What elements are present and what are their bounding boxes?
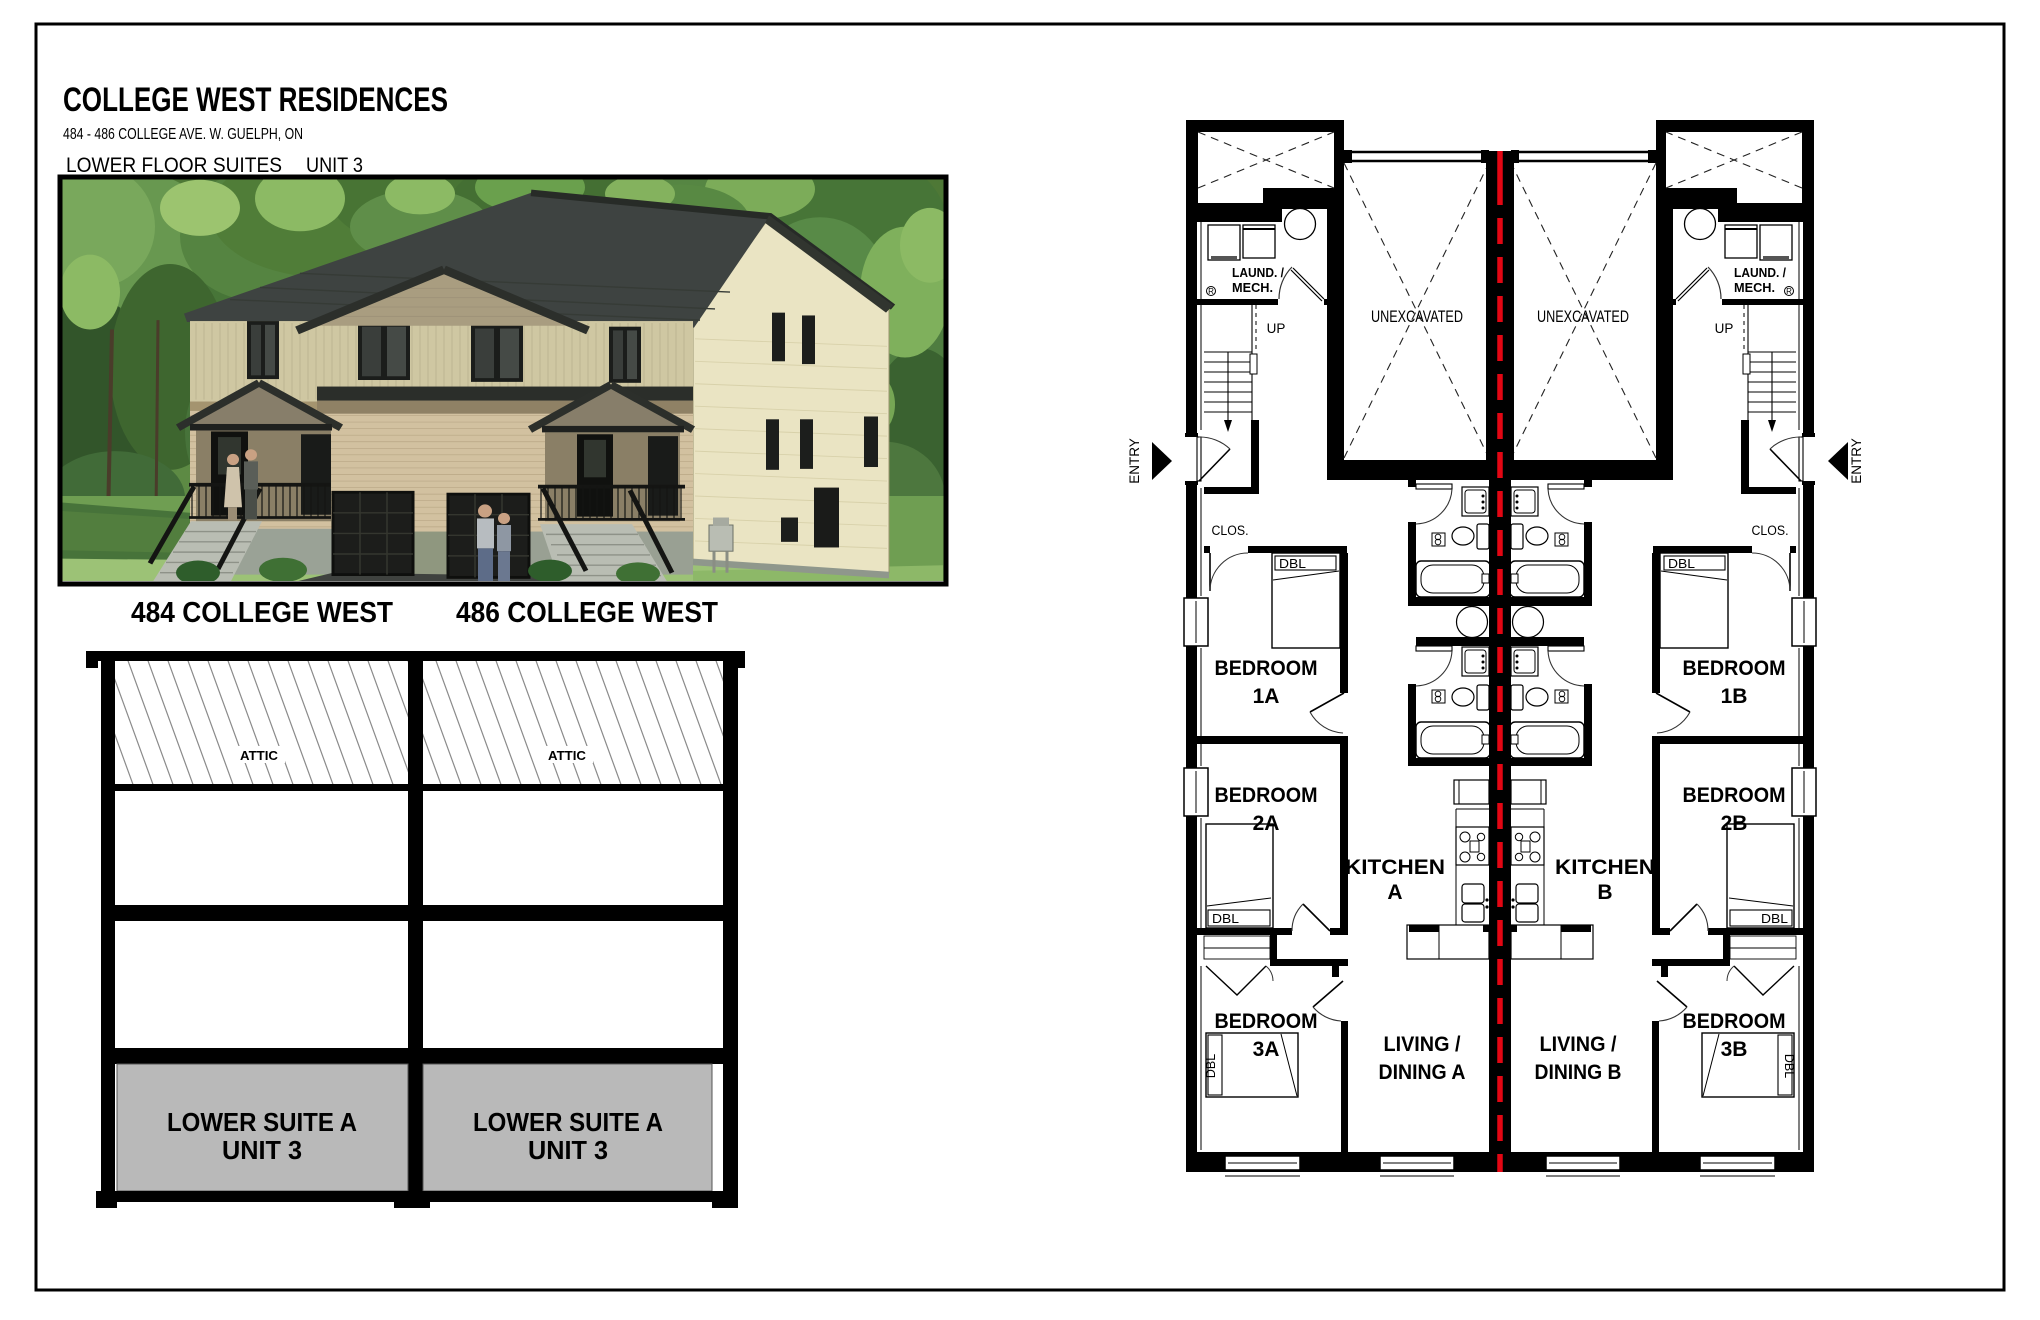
svg-text:DINING A: DINING A <box>1379 1061 1466 1084</box>
svg-text:1B: 1B <box>1721 685 1748 708</box>
svg-text:UNEXCAVATED: UNEXCAVATED <box>1371 307 1463 326</box>
svg-text:A: A <box>1387 881 1402 904</box>
svg-text:2B: 2B <box>1721 812 1748 835</box>
svg-text:484 - 486 COLLEGE AVE. W. GUEL: 484 - 486 COLLEGE AVE. W. GUELPH, ON <box>63 126 303 143</box>
svg-text:DBL: DBL <box>1761 912 1788 926</box>
svg-text:DBL: DBL <box>1204 1054 1218 1078</box>
svg-text:DBL: DBL <box>1782 1054 1796 1078</box>
svg-text:KITCHEN: KITCHEN <box>1555 856 1655 879</box>
svg-text:UNIT 3: UNIT 3 <box>222 1135 302 1165</box>
svg-text:MECH.: MECH. <box>1232 280 1273 295</box>
svg-text:LOWER FLOOR SUITES: LOWER FLOOR SUITES <box>66 154 282 177</box>
svg-text:ATTIC: ATTIC <box>240 748 279 763</box>
svg-text:COLLEGE WEST RESIDENCES: COLLEGE WEST RESIDENCES <box>63 81 448 119</box>
svg-text:LIVING /: LIVING / <box>1540 1033 1617 1056</box>
svg-text:UNEXCAVATED: UNEXCAVATED <box>1537 307 1629 326</box>
svg-text:486 COLLEGE WEST: 486 COLLEGE WEST <box>456 597 718 629</box>
svg-text:DBL: DBL <box>1212 912 1239 926</box>
svg-text:UP: UP <box>1715 321 1734 336</box>
svg-text:BEDROOM: BEDROOM <box>1683 1010 1786 1033</box>
svg-text:LOWER SUITE A: LOWER SUITE A <box>473 1107 663 1137</box>
svg-text:3A: 3A <box>1253 1038 1280 1061</box>
svg-text:BEDROOM: BEDROOM <box>1683 784 1786 807</box>
svg-text:3B: 3B <box>1721 1038 1748 1061</box>
svg-text:MECH.: MECH. <box>1734 280 1775 295</box>
svg-text:ATTIC: ATTIC <box>548 748 587 763</box>
svg-text:UNIT 3: UNIT 3 <box>306 154 363 177</box>
svg-text:DBL: DBL <box>1668 557 1695 571</box>
svg-text:UP: UP <box>1267 321 1286 336</box>
svg-text:ENTRY: ENTRY <box>1127 438 1142 484</box>
svg-text:DBL: DBL <box>1279 557 1306 571</box>
svg-text:KITCHEN: KITCHEN <box>1345 856 1445 879</box>
svg-text:R: R <box>1208 287 1214 296</box>
svg-text:UNIT 3: UNIT 3 <box>528 1135 608 1165</box>
svg-text:BEDROOM: BEDROOM <box>1215 784 1318 807</box>
svg-text:1A: 1A <box>1253 685 1280 708</box>
svg-text:CLOS.: CLOS. <box>1752 523 1789 538</box>
svg-text:DINING B: DINING B <box>1535 1061 1622 1084</box>
svg-text:LAUND. /: LAUND. / <box>1232 265 1284 280</box>
svg-text:LIVING /: LIVING / <box>1384 1033 1461 1056</box>
svg-text:ENTRY: ENTRY <box>1849 438 1864 484</box>
svg-text:B: B <box>1597 881 1612 904</box>
svg-text:BEDROOM: BEDROOM <box>1215 657 1318 680</box>
svg-text:BEDROOM: BEDROOM <box>1683 657 1786 680</box>
svg-text:R: R <box>1786 287 1792 296</box>
svg-text:LOWER SUITE A: LOWER SUITE A <box>167 1107 357 1137</box>
svg-text:LAUND. /: LAUND. / <box>1734 265 1786 280</box>
svg-text:BEDROOM: BEDROOM <box>1215 1010 1318 1033</box>
svg-text:CLOS.: CLOS. <box>1212 523 1249 538</box>
svg-text:484 COLLEGE WEST: 484 COLLEGE WEST <box>131 597 393 629</box>
svg-text:2A: 2A <box>1253 812 1280 835</box>
